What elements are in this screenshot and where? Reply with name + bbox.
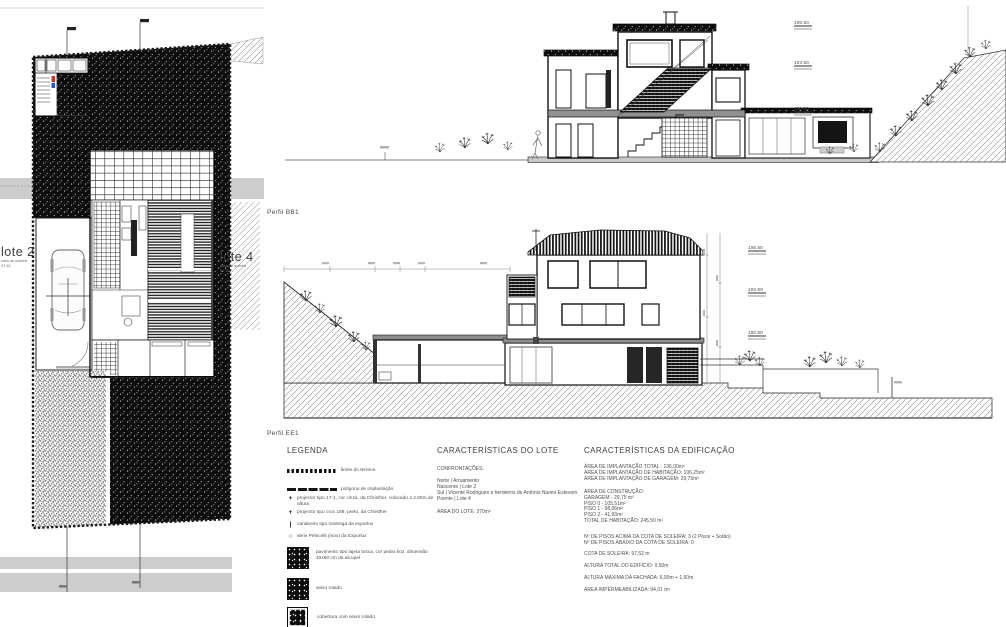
terrain-slope-left [284,282,375,383]
attic-window-left [548,261,578,288]
level-label: 100.50 [748,330,763,335]
gravel-area-bottom-left [35,371,106,528]
chimney [666,12,675,24]
deck-area [148,200,214,340]
legend-item: | candeeiro tipo mintrega da exporlux [287,522,437,528]
legend-title: LEGENDA [287,446,437,455]
elevation-markers-bb1: 106.50 103.50 100.50 [794,20,812,115]
building-section [544,12,872,158]
pavement-stipple-swatch [287,547,309,569]
elevation-markers-ee1: 106.50 103.50 100.50 [748,245,766,339]
inox-circle-icon: ○ [287,534,294,540]
roof [528,230,704,255]
legend-item: ○ série Pénicelli (inox) da Exporlux [287,534,437,540]
stair-marker-red [52,76,56,82]
confrontacao-west: Poente | Lote 4 [437,497,597,503]
attic-window [627,40,672,67]
implantation-garage: ÁREA DE IMPLANTAÇÃO DE GARAGEM: 29,75m² [584,477,794,483]
roof-slab-right [708,64,749,70]
architectural-drawing-sheet: 106.50 103.50 100.50 [0,0,1006,627]
plan-interior [33,44,230,528]
projector-cross-icon: + [287,510,294,516]
legend-item: pavimento tipo lajeta tosca, cor pedra l… [287,547,437,569]
section-ee1-drawing: 106.50 103.50 100.50 [270,225,1006,425]
level-label: 106.50 [748,245,763,250]
building-characteristics-title: CARACTERÍSTICAS DA EDIFICAÇÃO [584,446,794,455]
perfil-bb1-caption: Perfil BB1 [267,209,299,216]
legend-item: cobertura com seixo rolado [287,607,437,627]
terrain-slope-hatch [870,50,1006,162]
lower-rooms [92,340,214,377]
lot-characteristics-title: CARACTERÍSTICAS DO LOTE [437,446,597,455]
facade-height: ALTURA MÁXIMA DA FACHADA: 6,90m + 1,60m [584,576,794,582]
perfil-ee1-caption: Perfil EE1 [267,430,299,437]
louver-panel [509,277,535,297]
ground-hatch-band [284,383,992,418]
lot-characteristics-panel: CARACTERÍSTICAS DO LOTE CONFRONTAÇÕES: N… [437,446,597,515]
confrontacoes-label: CONFRONTAÇÕES: [437,467,597,473]
lote4-cota: 97,32 [220,269,254,274]
legend-item: polígono de implantação [287,487,437,493]
legend-item: seixo rolado [287,578,437,600]
projector-cross-icon: + [287,496,294,502]
legend-item: + projector tipo croc 188, preto, da Chr… [287,510,437,516]
dark-door [627,347,643,383]
grid-wall-panel [662,118,707,157]
legend-item: limite do terreno [287,468,437,474]
stair-marker-blue [52,83,56,88]
building-characteristics-panel: CARACTERÍSTICAS DA EDIFICAÇÃO ÁREA DE IM… [584,446,794,594]
site-plan-drawing [0,0,265,627]
person-figure [532,131,542,159]
lote2-label-group: lote 2 cota de soleira 97,61 [1,246,35,268]
dimension-lines-right [703,233,722,385]
lot-area: ÁREA DO LOTE: 370m² [437,510,597,516]
level-label: 103.50 [794,60,809,65]
plants-left [435,133,513,152]
pebble-stipple-swatch [287,578,309,600]
roof-slab-left [544,50,620,56]
house-elevation [503,229,704,385]
mid-window [562,304,624,325]
legend-panel: LEGENDA limite do terreno polígono de im… [287,446,437,627]
section-bb1-drawing: 106.50 103.50 100.50 [270,0,1006,220]
construction-total: TOTAL DE HABITAÇÃO: 245,50 m² [584,519,794,525]
dimension-line-top [284,262,510,272]
level-label: 103.50 [748,287,763,292]
tile-pavement-area [90,150,214,200]
threshold-level: COTA DE SOLEIRA: 97,52 m [584,552,794,558]
lote2-cota: 97,61 [1,264,35,269]
roof-pebble-stipple-swatch [287,607,308,627]
pebble-area-left [33,154,90,218]
impermeable-area: ÁREA IMPERMEABILIZADA: 94,01 m² [584,588,794,594]
terrain-limit-line-icon [287,469,337,473]
legend-item: + projector tipo 17-1, cor cinza, da Chr… [287,496,437,507]
striped-garage-door [667,348,698,383]
lote4-label-group: lote 4 cota de soleira 97,32 [220,251,254,273]
implantation-polygon-line-icon [287,488,337,492]
total-height: ALTURA TOTAL DO EDIFÍCIO: 9,50m [584,564,794,570]
ground-door [556,124,571,157]
pebble-area-bottom [110,378,214,528]
dark-window [818,121,847,143]
kitchen-rooms [92,200,148,340]
car-icon [46,250,90,330]
annex-building [35,58,88,116]
pebble-strip-right [214,154,230,519]
roof-slab-attic [613,24,716,31]
level-label: 106.50 [794,20,809,25]
lamppost-bar-icon: | [287,522,294,528]
level-label: 100.50 [794,106,809,111]
floors-below: Nº DE PISOS ABAIXO DA COTA DE SOLEIRA: 0 [584,541,794,547]
